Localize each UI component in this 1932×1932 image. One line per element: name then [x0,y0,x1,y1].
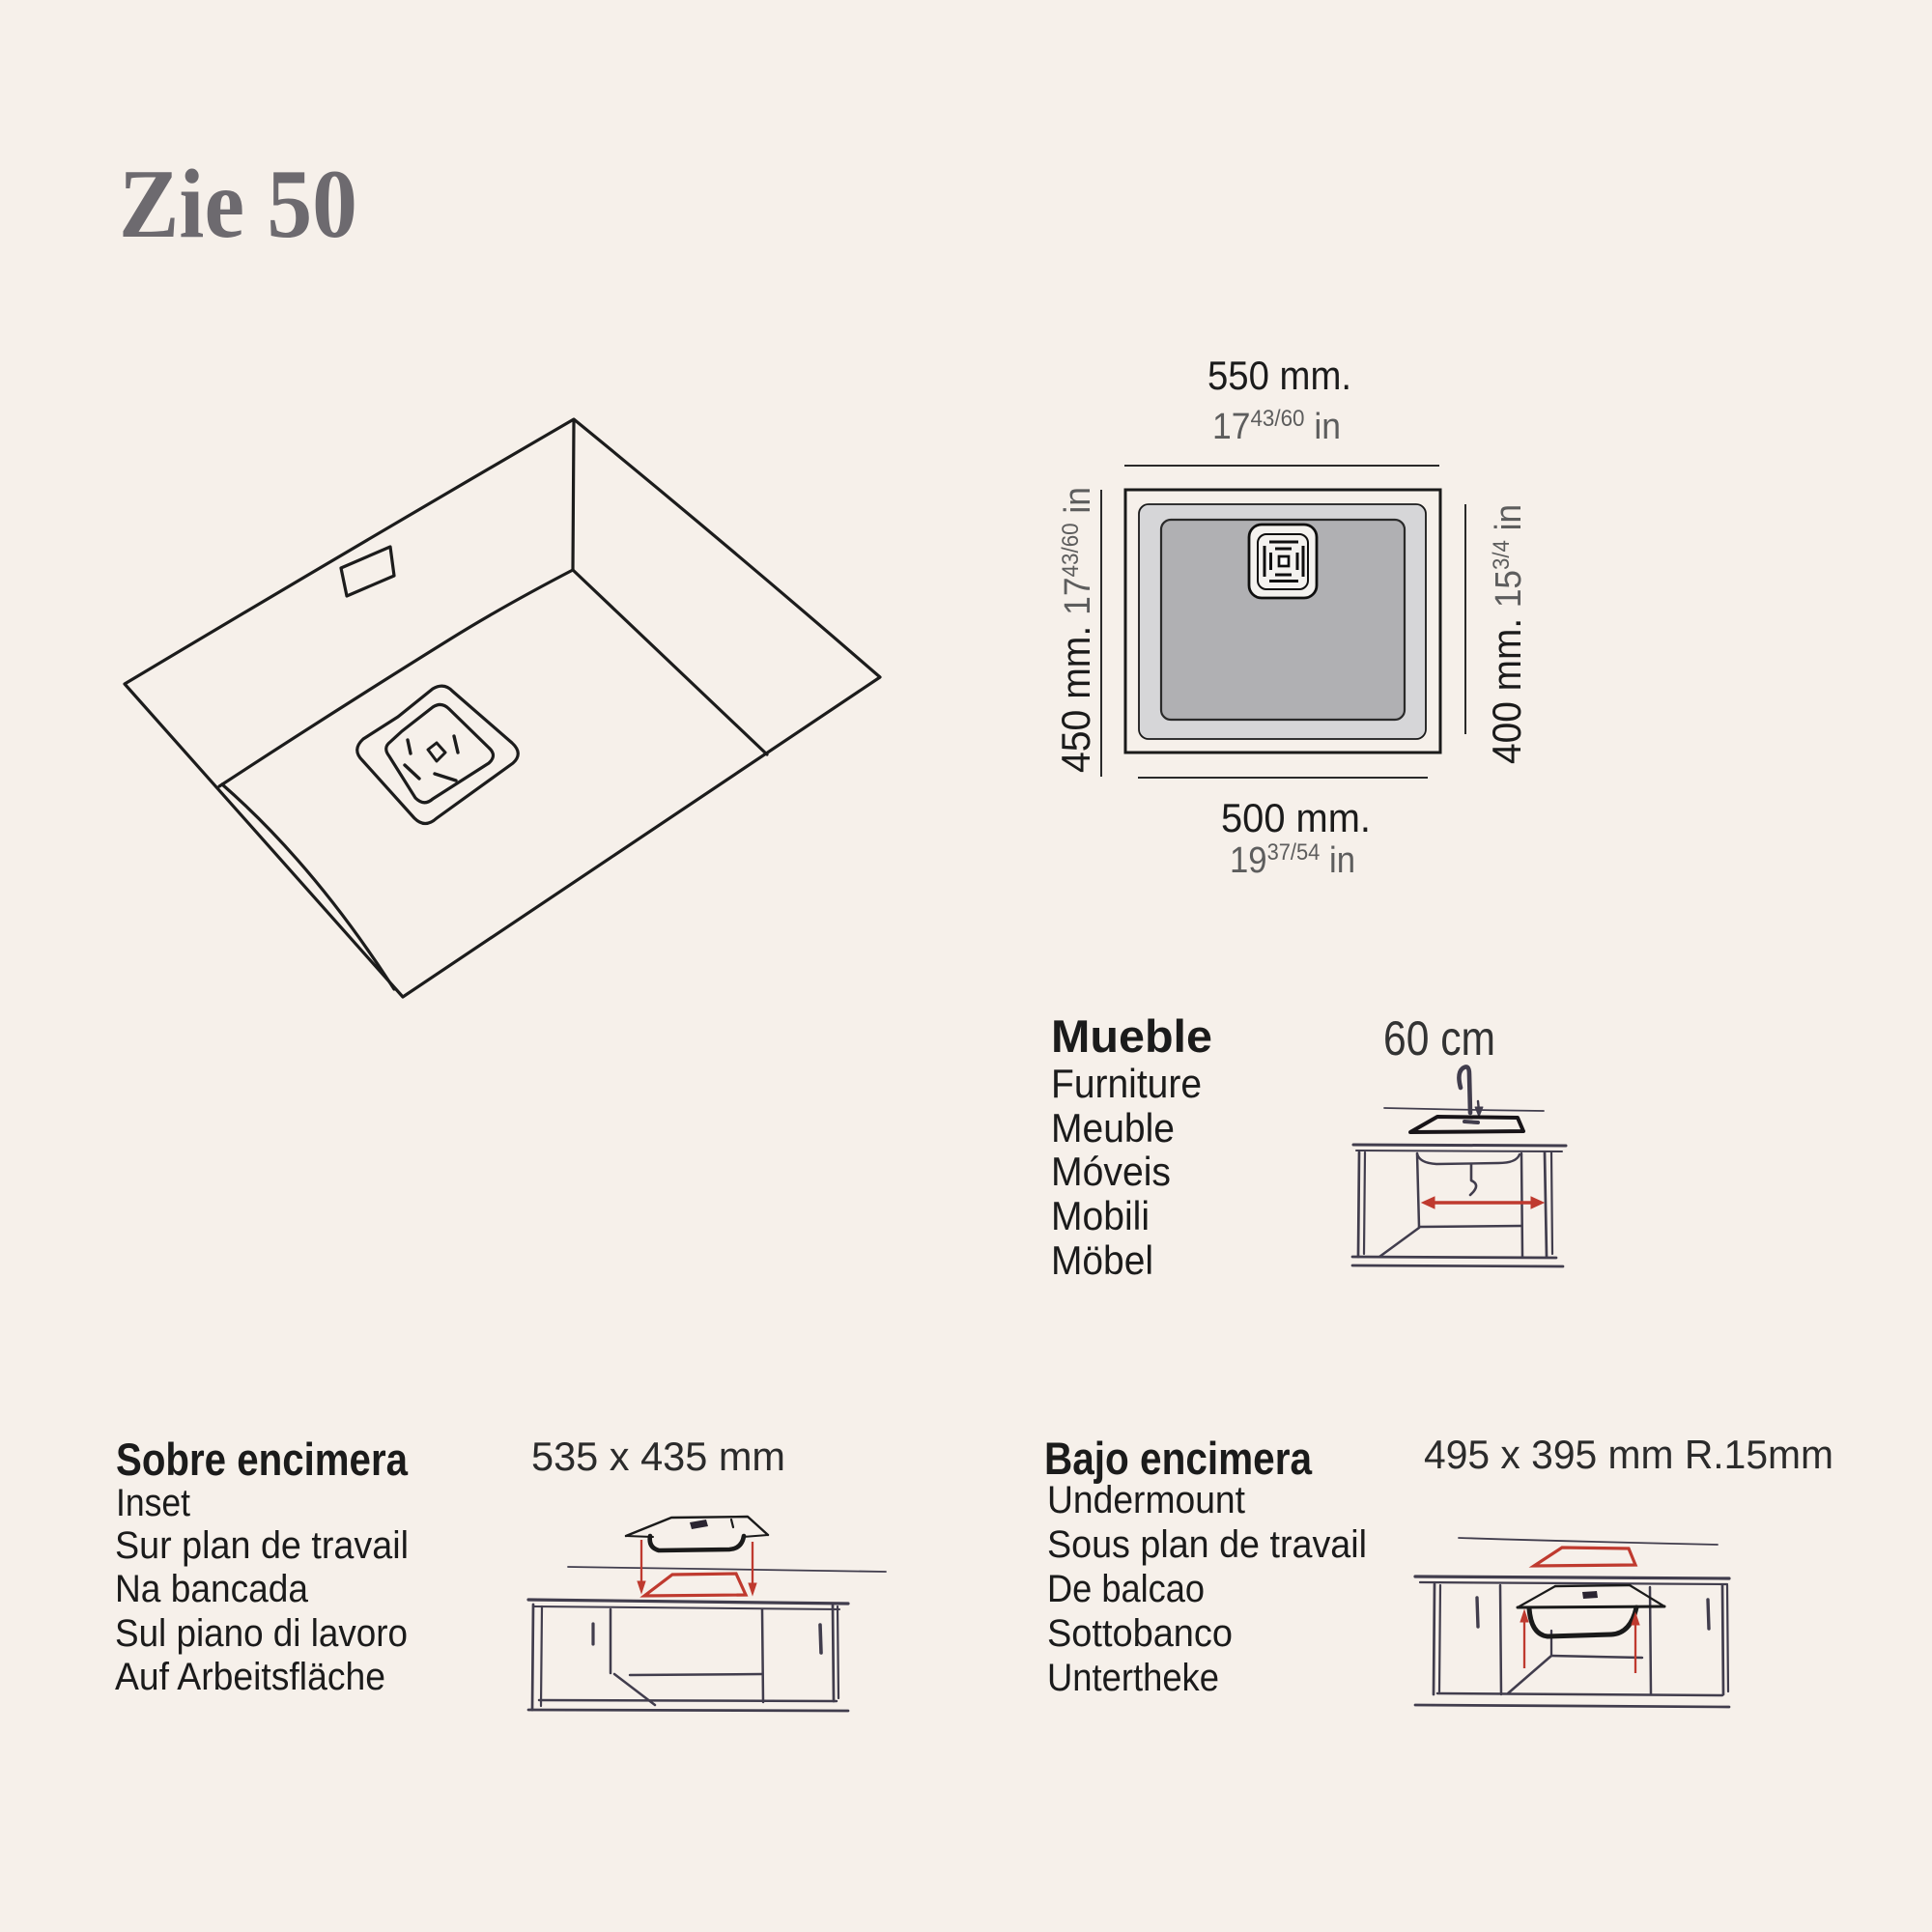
svg-text:495 x 395 mm R.15mm: 495 x 395 mm R.15mm [1424,1432,1833,1477]
svg-text:550 mm.: 550 mm. [1207,353,1351,398]
svg-text:Meuble: Meuble [1051,1105,1175,1151]
svg-text:Sous plan de travail: Sous plan de travail [1047,1523,1367,1566]
svg-text:De balcao: De balcao [1047,1568,1205,1610]
svg-text:Inset: Inset [116,1482,190,1524]
svg-text:Auf Arbeitsfläche: Auf Arbeitsfläche [115,1656,385,1698]
svg-text:500 mm.: 500 mm. [1221,795,1371,840]
svg-text:Sul piano di lavoro: Sul piano di lavoro [115,1612,408,1655]
svg-text:Mobili: Mobili [1051,1193,1150,1238]
svg-text:Móveis: Móveis [1051,1149,1171,1194]
svg-text:Möbel: Möbel [1051,1237,1153,1283]
svg-text:Mueble: Mueble [1051,1010,1212,1062]
svg-text:Bajo encimera: Bajo encimera [1044,1433,1313,1484]
svg-text:Na bancada: Na bancada [115,1568,309,1610]
svg-text:Zie 50: Zie 50 [119,150,357,259]
svg-text:Undermount: Undermount [1047,1479,1245,1521]
svg-text:Furniture: Furniture [1051,1061,1202,1106]
svg-text:535 x 435 mm: 535 x 435 mm [531,1434,785,1479]
svg-text:Sobre encimera: Sobre encimera [116,1434,409,1485]
svg-text:Sur plan de travail: Sur plan de travail [115,1524,409,1567]
svg-text:60 cm: 60 cm [1383,1011,1495,1065]
svg-text:Sottobanco: Sottobanco [1047,1612,1233,1655]
svg-text:Untertheke: Untertheke [1047,1657,1219,1699]
